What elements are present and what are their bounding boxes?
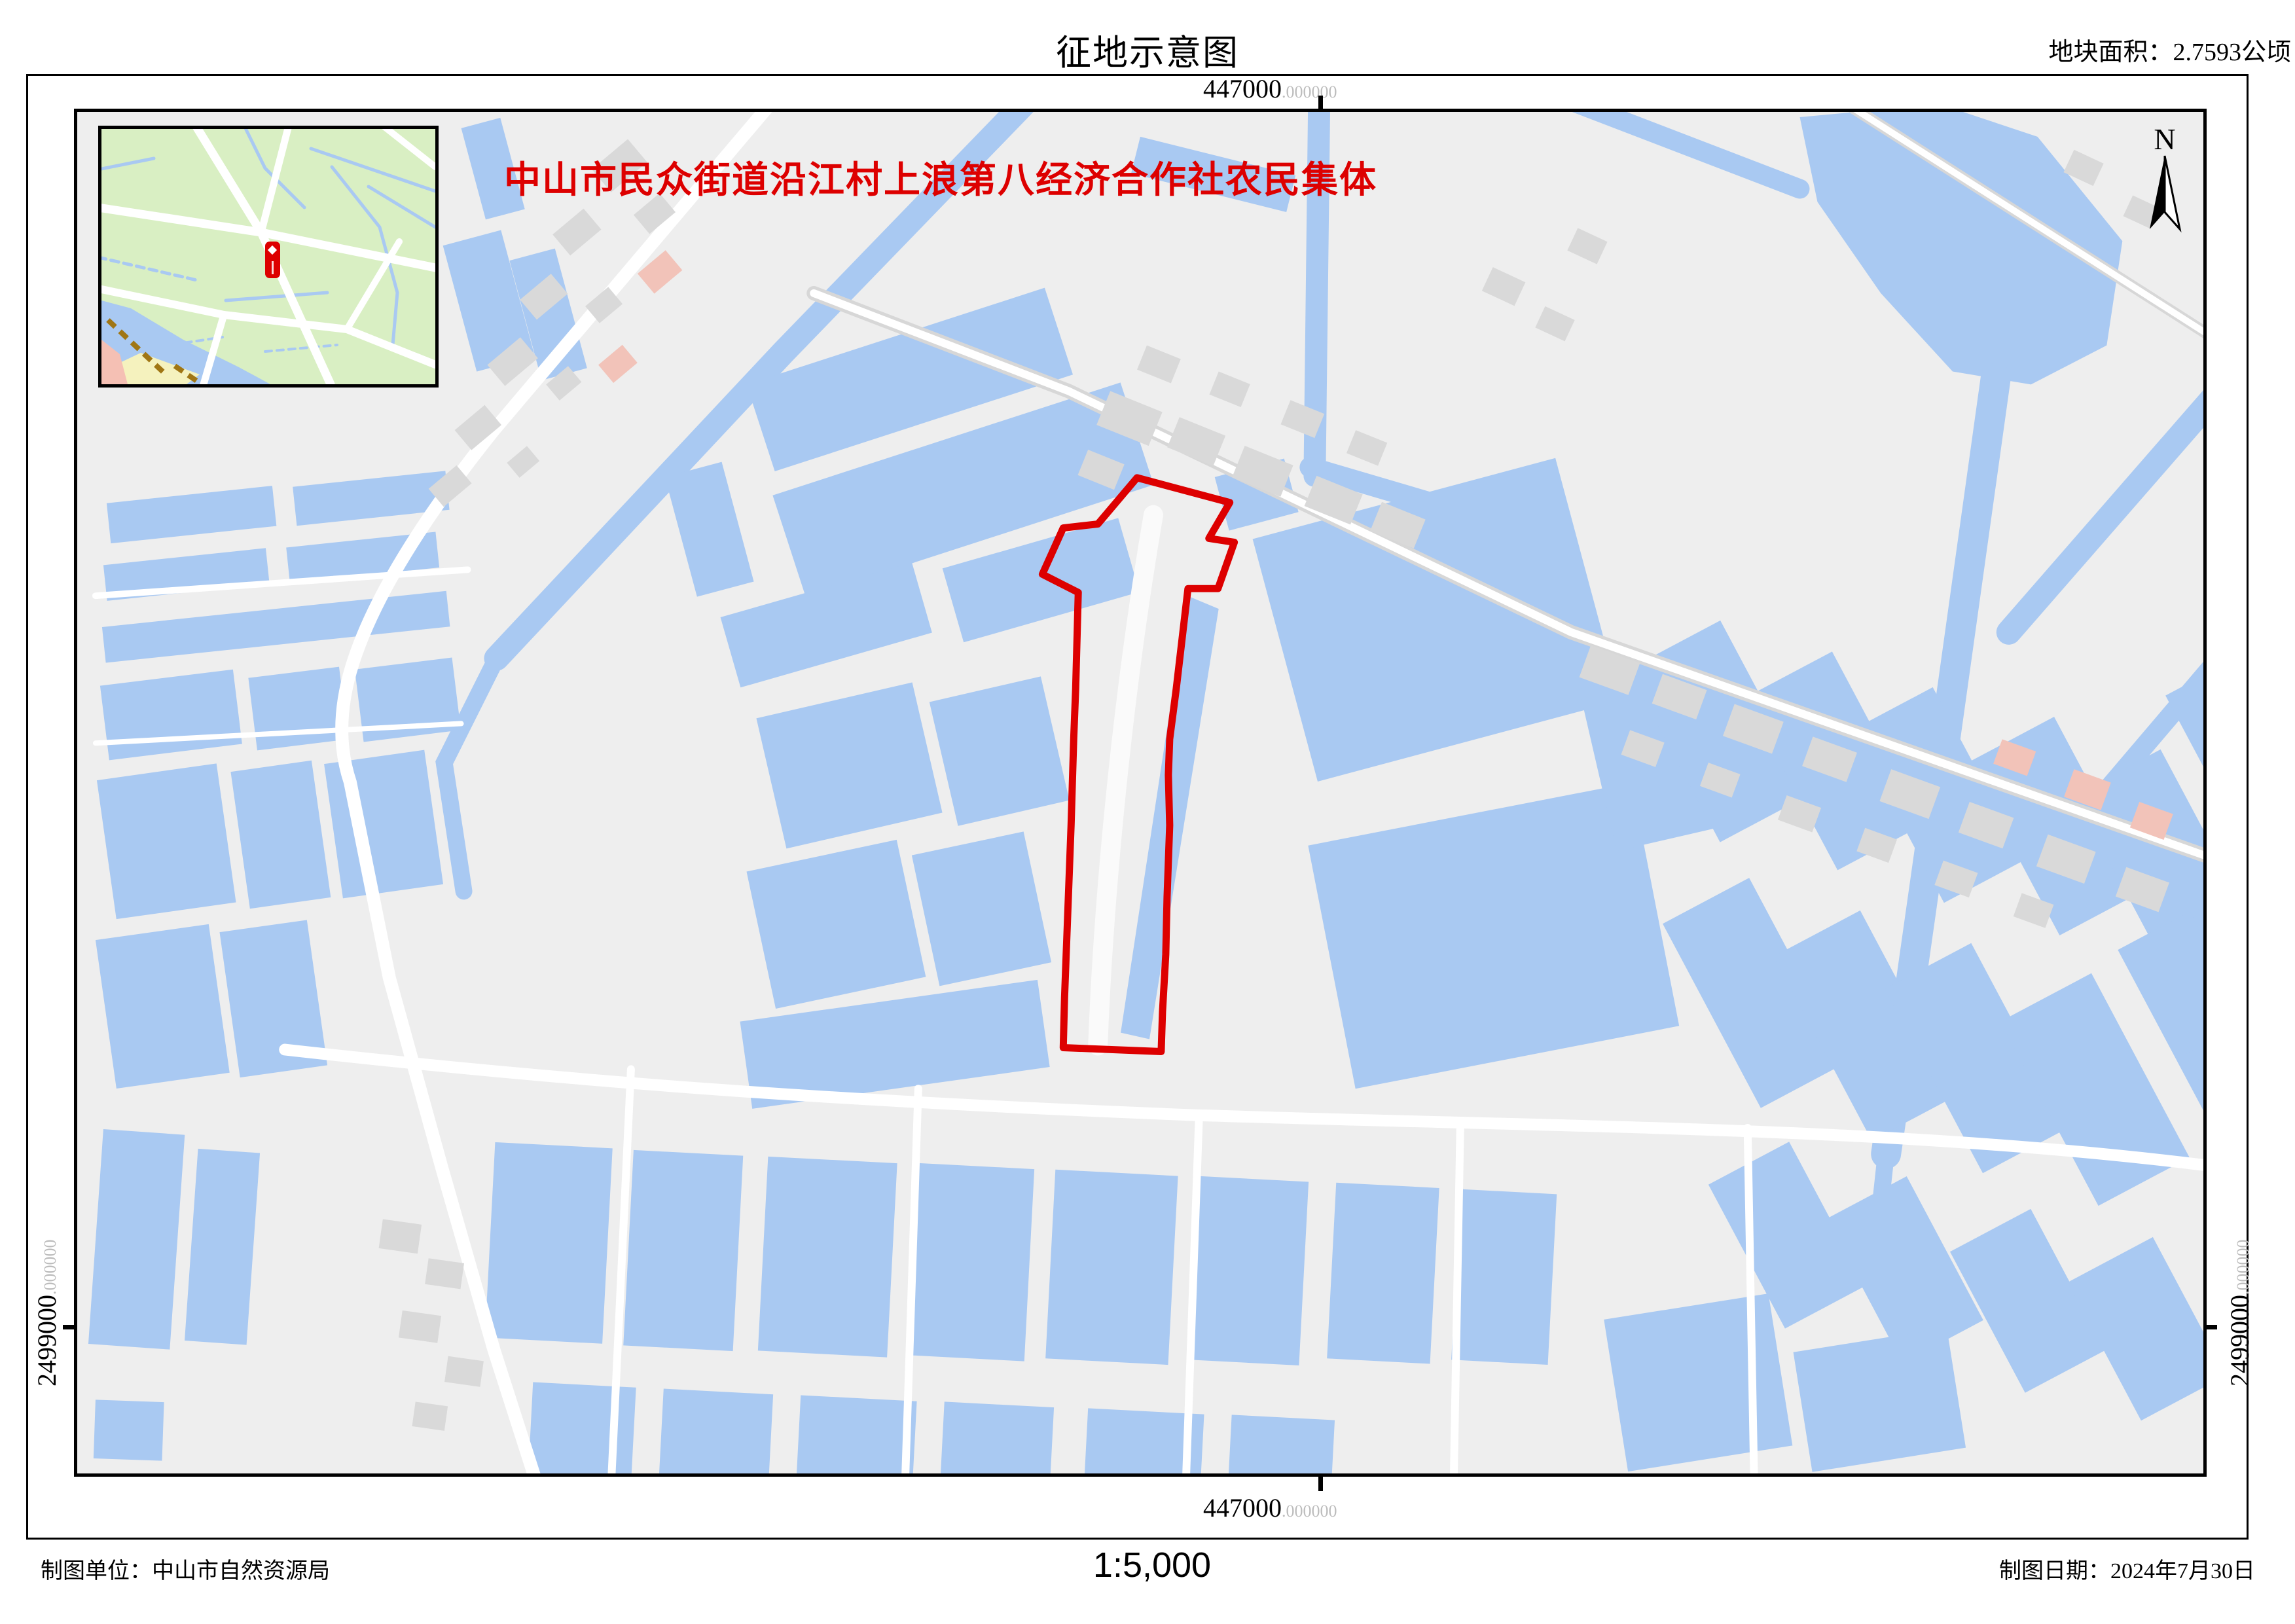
grid-label-northing-right: 2499000.000000 xyxy=(2224,1240,2255,1387)
grid-tick-top xyxy=(1318,96,1323,110)
grid-label-northing-left: 2499000.000000 xyxy=(31,1240,62,1387)
parcel-area-label: 地块面积：2.7593公顷 xyxy=(1833,31,2291,67)
north-arrow-icon xyxy=(2142,154,2188,233)
easting-decimal: .000000 xyxy=(1282,82,1337,101)
easting-value: 447000 xyxy=(1203,74,1282,103)
north-label: N xyxy=(2135,124,2194,154)
map-date-label: 制图日期：2024年7月30日 xyxy=(1898,1553,2255,1585)
parcel-owner-label: 中山市民众街道沿江村上浪第八经济合作社农民集体 xyxy=(504,151,1377,204)
northing-value: 2499000 xyxy=(2225,1295,2254,1386)
northing-decimal: .000000 xyxy=(2233,1240,2252,1295)
easting-decimal: .000000 xyxy=(1282,1502,1337,1521)
northing-value: 2499000 xyxy=(32,1295,62,1386)
north-arrow: N xyxy=(2135,124,2194,236)
map-agency-label: 制图单位：中山市自然资源局 xyxy=(41,1553,330,1585)
inset-canvas xyxy=(101,129,435,384)
grid-tick-bottom xyxy=(1318,1475,1323,1491)
grid-label-easting-top: 447000.000000 xyxy=(1203,73,1337,104)
map-scale-label: 1:5,000 xyxy=(1034,1545,1270,1585)
easting-value: 447000 xyxy=(1203,1493,1282,1523)
inset-parcel-marker xyxy=(265,242,280,278)
page: { "page": { "title": "征地示意图", "area_labe… xyxy=(0,0,2295,1624)
grid-label-easting-bottom: 447000.000000 xyxy=(1203,1492,1337,1523)
inset-locator-map xyxy=(98,126,439,388)
northing-decimal: .000000 xyxy=(41,1240,60,1295)
